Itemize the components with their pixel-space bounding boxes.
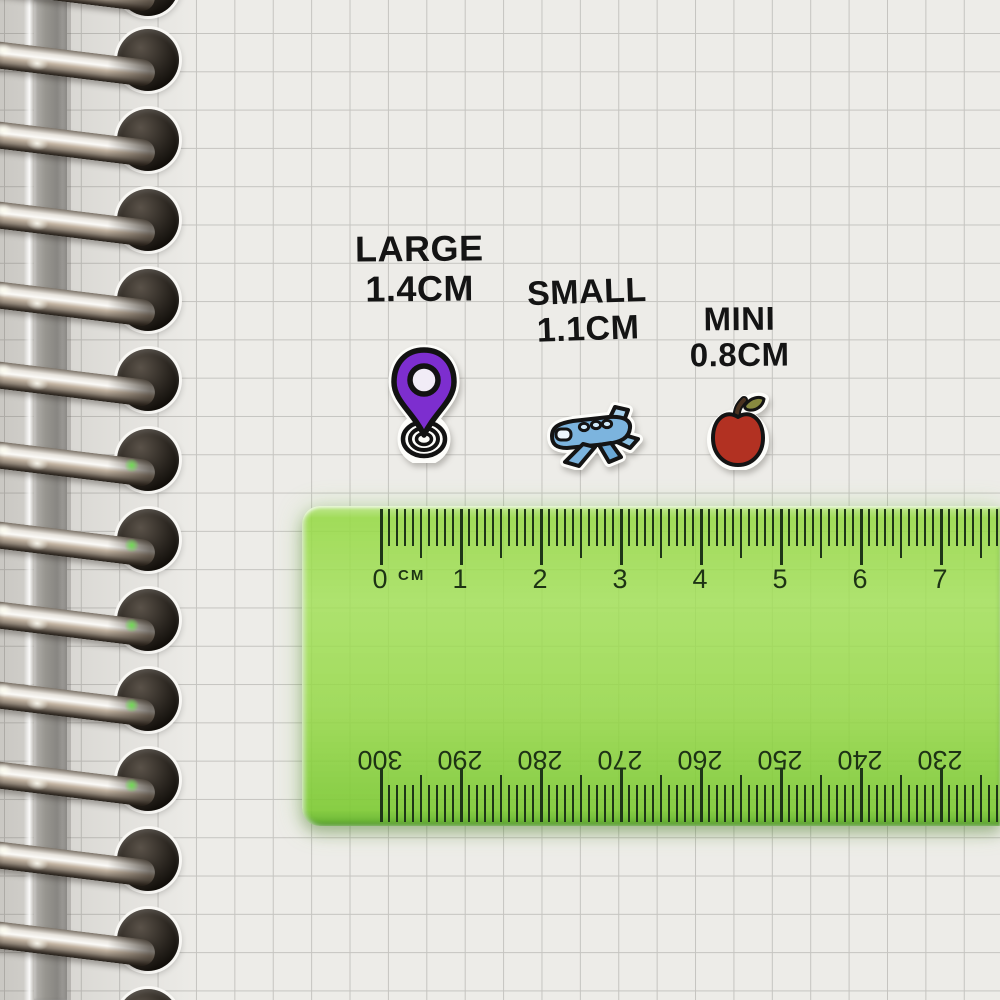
ruler-tick	[588, 509, 590, 546]
ruler-tick	[620, 509, 623, 565]
ruler-tick	[644, 509, 646, 546]
ruler-tick	[932, 785, 934, 822]
ruler-tick	[996, 785, 998, 822]
ruler-tick	[572, 509, 574, 546]
ruler-tick	[508, 509, 510, 546]
ruler-tick	[388, 509, 390, 546]
ruler-tick	[660, 509, 662, 558]
ruler-tick	[924, 509, 926, 546]
ruler-tick	[508, 785, 510, 822]
ruler-tick	[732, 509, 734, 546]
ruler-tick	[980, 509, 982, 558]
ruler-tick	[892, 785, 894, 822]
ruler-tick	[788, 785, 790, 822]
ruler-tick	[668, 509, 670, 546]
ruler-tick	[548, 785, 550, 822]
ruler-tick	[668, 785, 670, 822]
ruler-tick	[444, 785, 446, 822]
ruler-tick	[964, 509, 966, 546]
ruler-tick	[756, 785, 758, 822]
label-small: SMALL 1.1CM	[519, 272, 657, 351]
ruler-tick	[900, 775, 902, 822]
ruler-tick	[836, 509, 838, 546]
ruler-tick	[828, 509, 830, 546]
ruler-tick	[812, 509, 814, 546]
ruler-tick	[844, 785, 846, 822]
ruler-tick	[460, 768, 463, 822]
ruler-tick	[940, 768, 943, 822]
ruler-mm-number: 300	[357, 744, 402, 775]
ruler-tick	[644, 785, 646, 822]
ruler-tick	[796, 785, 798, 822]
ruler-tick	[620, 768, 623, 822]
label-mini: MINI 0.8CM	[672, 300, 808, 374]
ruler-tick	[564, 509, 566, 546]
ruler-tick	[476, 509, 478, 546]
ruler-tick	[932, 509, 934, 546]
ruler-tick	[980, 775, 982, 822]
ruler-tick	[484, 785, 486, 822]
ruler-tick	[420, 509, 422, 558]
ruler-tick	[924, 785, 926, 822]
ruler-mm-number: 260	[677, 744, 722, 775]
ruler-tick	[676, 509, 678, 546]
ruler-mm-number: 290	[437, 744, 482, 775]
ruler-tick	[716, 785, 718, 822]
ruler-tick	[660, 775, 662, 822]
ruler-tick	[540, 768, 543, 822]
ruler-tick	[516, 509, 518, 546]
ruler-tick	[956, 785, 958, 822]
ruler-tick	[748, 509, 750, 546]
ruler-tick	[796, 509, 798, 546]
ruler-cm-number: 6	[852, 564, 867, 595]
ruler-tick	[596, 785, 598, 822]
ruler-tick	[404, 785, 406, 822]
ruler-tick	[444, 509, 446, 546]
label-large-name: LARGE	[355, 227, 484, 269]
ruler-tick	[740, 775, 742, 822]
ruler-tick	[876, 509, 878, 546]
ruler-tick	[676, 785, 678, 822]
ruler-tick	[636, 785, 638, 822]
ruler-tick	[812, 785, 814, 822]
ruler-tick	[692, 785, 694, 822]
ruler-tick	[516, 785, 518, 822]
ruler-tick	[716, 509, 718, 546]
ruler-tick	[908, 509, 910, 546]
ruler-tick	[772, 509, 774, 546]
ruler-tick	[476, 785, 478, 822]
ruler-mm-number: 250	[757, 744, 802, 775]
ruler-tick	[524, 785, 526, 822]
ruler-tick	[652, 509, 654, 546]
ruler-tick	[708, 509, 710, 546]
ruler-tick	[852, 785, 854, 822]
ruler-tick	[748, 785, 750, 822]
photo-scene: LARGE 1.4CM SMALL 1.1CM MINI 0.8CM	[0, 0, 1000, 1000]
apple-icon	[713, 397, 764, 465]
ruler-tick	[772, 785, 774, 822]
ruler-tick	[916, 785, 918, 822]
ruler-tick	[532, 509, 534, 546]
ruler-tick	[860, 509, 863, 565]
ruler-tick	[420, 775, 422, 822]
ruler-tick	[500, 775, 502, 822]
ruler-cm-number: 3	[612, 564, 627, 595]
ruler-tick	[820, 509, 822, 558]
ruler-tick	[532, 785, 534, 822]
ruler-tick	[596, 509, 598, 546]
ruler-tick	[964, 785, 966, 822]
label-mini-name: MINI	[703, 300, 775, 338]
ruler-tick	[724, 785, 726, 822]
ruler-tick	[724, 509, 726, 546]
ruler-tick	[700, 509, 703, 565]
ruler-cm-number: 5	[772, 564, 787, 595]
ruler-tick	[700, 768, 703, 822]
ruler-tick	[892, 509, 894, 546]
ruler-tick	[612, 785, 614, 822]
ruler-tick	[972, 509, 974, 546]
ruler-tick	[548, 509, 550, 546]
ruler-tick	[956, 509, 958, 546]
ruler-tick	[940, 509, 943, 565]
label-large-size: 1.4CM	[352, 268, 487, 309]
ruler-tick	[380, 768, 383, 822]
ruler-tick	[580, 509, 582, 558]
ruler-tick	[588, 785, 590, 822]
ruler-tick	[996, 509, 998, 546]
ruler-cm-number: 1	[452, 564, 467, 595]
ruler-tick	[604, 785, 606, 822]
ruler-tick	[428, 509, 430, 546]
ruler-tick	[988, 785, 990, 822]
ruler-tick	[572, 785, 574, 822]
ruler-tick	[708, 785, 710, 822]
apple-sticker	[704, 392, 772, 470]
ruler-tick	[780, 509, 783, 565]
ruler-tick	[948, 509, 950, 546]
ruler-tick	[500, 509, 502, 558]
ruler-tick	[836, 785, 838, 822]
ruler-tick	[564, 785, 566, 822]
ruler-mm-number: 270	[597, 744, 642, 775]
ruler-tick	[876, 785, 878, 822]
ruler-tick	[764, 785, 766, 822]
ruler-cm-number: 4	[692, 564, 707, 595]
label-small-name: SMALL	[526, 271, 647, 313]
ruler-tick	[828, 785, 830, 822]
ruler-tick	[388, 785, 390, 822]
label-mini-size: 0.8CM	[672, 337, 807, 374]
ruler-tick	[684, 785, 686, 822]
ruler-tick	[556, 509, 558, 546]
ruler-cm-number: 0	[372, 564, 387, 595]
ruler-tick	[692, 509, 694, 546]
ruler-tick	[820, 775, 822, 822]
ruler-tick	[452, 509, 454, 546]
ruler-mm-number: 240	[837, 744, 882, 775]
ruler-tick	[524, 509, 526, 546]
airplane-sticker	[543, 398, 643, 470]
ruler-tick	[804, 785, 806, 822]
ruler-tick	[460, 509, 463, 565]
ruler-tick	[732, 785, 734, 822]
ruler-tick	[860, 768, 863, 822]
ruler-tick	[868, 785, 870, 822]
ruler-tick	[884, 785, 886, 822]
ruler-tick	[412, 785, 414, 822]
location-pin-sticker	[384, 343, 464, 463]
ruler-tick	[908, 785, 910, 822]
ruler-tick	[780, 768, 783, 822]
ruler-tick	[740, 509, 742, 558]
ruler-tick	[916, 509, 918, 546]
ruler-tick	[884, 509, 886, 546]
ruler-tick	[380, 509, 383, 565]
ruler-tick	[396, 785, 398, 822]
label-small-size: 1.1CM	[520, 309, 656, 351]
spiral-binding	[0, 0, 210, 1000]
ruler-tick	[684, 509, 686, 546]
ruler-tick	[868, 509, 870, 546]
ruler-tick	[436, 785, 438, 822]
ruler-tick	[852, 509, 854, 546]
ruler-tick	[652, 785, 654, 822]
ruler-tick	[788, 509, 790, 546]
ruler-tick	[484, 509, 486, 546]
ruler-tick	[540, 509, 543, 565]
ruler-tick	[412, 509, 414, 546]
ruler-tick	[396, 509, 398, 546]
ruler-tick	[580, 775, 582, 822]
ruler-tick	[628, 509, 630, 546]
ruler: 01234567CM 300290280270260250240230	[302, 506, 1000, 826]
ruler-tick	[988, 509, 990, 546]
ruler-tick	[468, 785, 470, 822]
ruler-tick	[612, 509, 614, 546]
ruler-tick	[804, 509, 806, 546]
label-large: LARGE 1.4CM	[352, 228, 488, 308]
ruler-tick	[404, 509, 406, 546]
ruler-mm-number: 230	[917, 744, 962, 775]
ruler-tick	[636, 509, 638, 546]
ruler-cm-number: 7	[932, 564, 947, 595]
ruler-tick	[492, 509, 494, 546]
ruler-tick	[468, 509, 470, 546]
ruler-tick	[492, 785, 494, 822]
ruler-tick	[556, 785, 558, 822]
ruler-mm-number: 280	[517, 744, 562, 775]
ruler-tick	[764, 509, 766, 546]
ruler-tick	[900, 509, 902, 558]
ruler-tick	[948, 785, 950, 822]
ruler-unit-label: CM	[398, 567, 425, 584]
ruler-tick	[428, 785, 430, 822]
ruler-tick	[844, 509, 846, 546]
ruler-tick	[756, 509, 758, 546]
ruler-tick	[628, 785, 630, 822]
ruler-tick	[972, 785, 974, 822]
ruler-tick	[436, 509, 438, 546]
ruler-tick	[604, 509, 606, 546]
ruler-tick	[452, 785, 454, 822]
ruler-cm-number: 2	[532, 564, 547, 595]
